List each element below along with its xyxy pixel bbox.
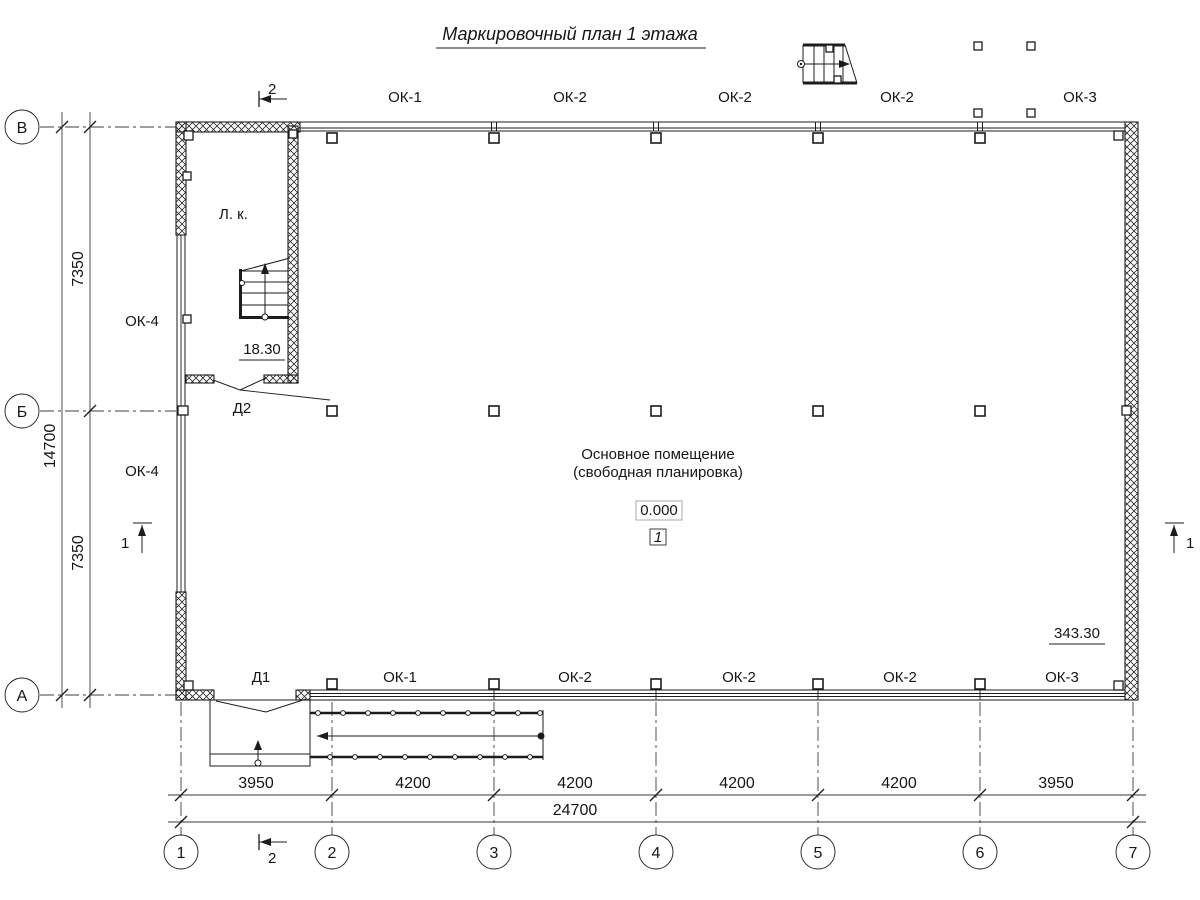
floor-plan-drawing: Маркировочный план 1 этажа В Б А 1 2 3 4…: [0, 0, 1200, 900]
axis-label-1: 1: [177, 845, 186, 862]
window-label: ОК-2: [883, 669, 917, 686]
section-mark-1-right: 1: [1165, 523, 1194, 553]
room-name-line1: Основное помещение: [581, 446, 735, 463]
section-mark-1-left: 1: [121, 523, 152, 553]
axis-label-5: 5: [814, 845, 823, 862]
axis-label-a: А: [17, 688, 28, 705]
entrance-ramp: [310, 710, 544, 760]
window-label: ОК-3: [1045, 669, 1079, 686]
room-name-line2: (свободная планировка): [573, 464, 743, 481]
window-label: ОК-4: [125, 313, 159, 330]
axis-label-6: 6: [976, 845, 985, 862]
dim-left-total: 14700: [42, 424, 59, 469]
axis-label-4: 4: [652, 845, 661, 862]
section-label: 1: [1186, 535, 1194, 552]
plan-svg: Маркировочный план 1 этажа В Б А 1 2 3 4…: [0, 0, 1200, 900]
entrance-porch: [210, 700, 310, 766]
room-annotations: Основное помещение (свободная планировка…: [573, 446, 1105, 644]
dim-total-bottom: 24700: [553, 802, 598, 819]
section-mark-2-bottom: 2: [259, 834, 287, 867]
detached-column-markers: [974, 42, 1035, 117]
window-label: ОК-4: [125, 463, 159, 480]
axis-label-3: 3: [490, 845, 499, 862]
dim-seg-2: 4200: [395, 775, 431, 792]
section-label: 2: [268, 850, 276, 867]
window-label: ОК-3: [1063, 89, 1097, 106]
door-d1: Д1: [216, 669, 306, 712]
column-axes: 1 2 3 4 5 6 7: [164, 702, 1150, 869]
bottom-dimensions: 3950 4200 4200 4200 4200 3950 24700: [168, 775, 1146, 828]
section-label: 2: [268, 81, 276, 98]
axis-label-2: 2: [328, 845, 337, 862]
window-label: ОК-2: [718, 89, 752, 106]
door-d2: Д2: [213, 378, 330, 417]
stair-elevation: 18.30: [243, 341, 281, 358]
columns: [178, 122, 1131, 700]
window-label: ОК-2: [722, 669, 756, 686]
window-label: ОК-1: [383, 669, 417, 686]
drawing-title: Маркировочный план 1 этажа: [436, 24, 706, 48]
dim-left-upper: 7350: [70, 251, 87, 287]
axis-label-v: В: [17, 120, 28, 137]
dim-left-lower: 7350: [70, 535, 87, 571]
section-label: 1: [121, 535, 129, 552]
window-label: ОК-2: [558, 669, 592, 686]
window-label: ОК-1: [388, 89, 422, 106]
dim-seg-4: 4200: [719, 775, 755, 792]
dim-seg-6: 3950: [1038, 775, 1074, 792]
door-d2-label: Д2: [233, 400, 252, 417]
axis-label-7: 7: [1129, 845, 1138, 862]
page-title: Маркировочный план 1 этажа: [442, 24, 697, 44]
elevation-right: 343.30: [1054, 625, 1100, 642]
stairwell: Л. к. 18.30: [219, 206, 290, 360]
window-label: ОК-2: [880, 89, 914, 106]
floor-level: 0.000: [640, 502, 678, 519]
left-dimensions: 7350 7350 14700: [42, 112, 96, 708]
stairwell-label: Л. к.: [219, 206, 248, 223]
axis-label-b: Б: [17, 404, 28, 421]
room-number: 1: [654, 529, 662, 546]
stair-flight-detail: [798, 45, 858, 83]
dim-seg-1: 3950: [238, 775, 274, 792]
section-mark-2-top: 2: [259, 81, 287, 107]
window-labels-left: ОК-4 ОК-4: [125, 313, 159, 480]
window-labels-top: ОК-1 ОК-2 ОК-2 ОК-2 ОК-3: [388, 89, 1097, 106]
window-label: ОК-2: [553, 89, 587, 106]
dim-seg-3: 4200: [557, 775, 593, 792]
dim-seg-5: 4200: [881, 775, 917, 792]
door-d1-label: Д1: [252, 669, 271, 686]
